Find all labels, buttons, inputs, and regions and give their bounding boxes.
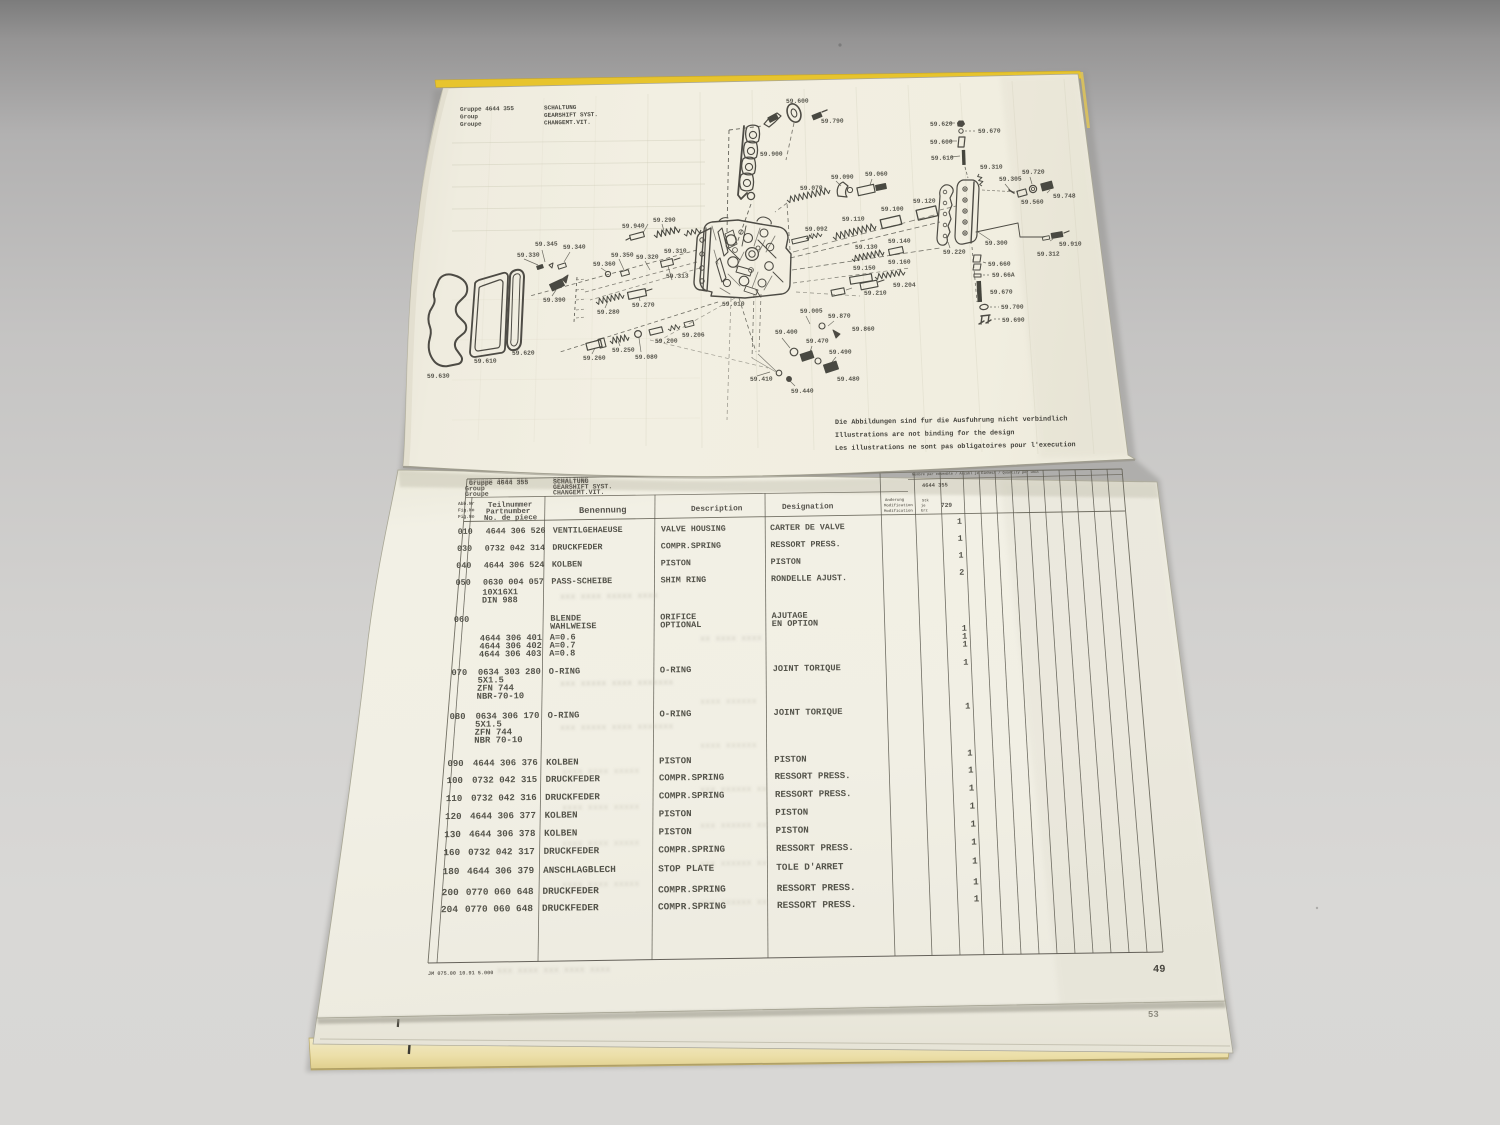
svg-text:NBR 70-10: NBR 70-10 [474, 735, 522, 746]
svg-text:1: 1 [974, 893, 980, 904]
svg-text:Modification: Modification [884, 509, 913, 514]
svg-text:4644 306 376: 4644 306 376 [473, 757, 538, 769]
svg-text:1: 1 [967, 749, 973, 759]
svg-text:O-RING: O-RING [549, 666, 581, 676]
svg-text:1: 1 [957, 518, 962, 527]
svg-text:59.690: 59.690 [1002, 317, 1025, 324]
svg-text:4644 306 526: 4644 306 526 [486, 527, 546, 537]
svg-text:59.290: 59.290 [653, 217, 676, 224]
svg-text:050: 050 [456, 578, 471, 588]
svg-text:RESSORT PRESS.: RESSORT PRESS. [777, 882, 856, 894]
svg-text:COMPR.SPRING: COMPR.SPRING [659, 772, 724, 784]
svg-text:59.070: 59.070 [800, 185, 823, 192]
svg-text:KOLBEN: KOLBEN [544, 827, 577, 838]
svg-text:59.330: 59.330 [517, 252, 540, 259]
svg-text:59.900: 59.900 [760, 151, 783, 158]
svg-text:Erz: Erz [921, 508, 928, 513]
svg-text:040: 040 [456, 561, 471, 571]
svg-text:je: je [921, 503, 926, 508]
svg-text:59.860: 59.860 [852, 326, 875, 333]
svg-text:59.670: 59.670 [990, 289, 1013, 296]
svg-text:JOINT TORIQUE: JOINT TORIQUE [773, 707, 842, 718]
svg-text:59.630: 59.630 [427, 373, 450, 380]
svg-text:O-RING: O-RING [548, 710, 580, 720]
svg-text:0732 042 315: 0732 042 315 [472, 774, 537, 786]
svg-text:PISTON: PISTON [659, 808, 692, 819]
svg-text:xxx xxxxx xxxx xxxxxxx: xxx xxxxx xxxx xxxxxxx [560, 678, 674, 689]
svg-text:59.310: 59.310 [980, 164, 1003, 171]
svg-text:59.345: 59.345 [535, 241, 558, 248]
svg-text:030: 030 [457, 544, 472, 554]
svg-text:Benennung: Benennung [579, 505, 627, 516]
svg-text:204: 204 [441, 904, 458, 915]
svg-text:O-RING: O-RING [659, 709, 691, 719]
svg-text:59.600: 59.600 [786, 98, 809, 105]
svg-text:59.910: 59.910 [1059, 241, 1082, 248]
svg-text:xxx xxxxxx xx: xxx xxxxxx xx [700, 820, 767, 831]
svg-text:59.270: 59.270 [632, 302, 655, 309]
svg-text:59.140: 59.140 [888, 238, 911, 245]
svg-text:RONDELLE AJUST.: RONDELLE AJUST. [771, 573, 847, 584]
svg-text:PISTON: PISTON [658, 826, 691, 837]
svg-text:59.350: 59.350 [611, 252, 634, 259]
svg-text:No. de piece: No. de piece [484, 514, 538, 523]
svg-text:49: 49 [1153, 964, 1166, 976]
svg-text:RESSORT PRESS.: RESSORT PRESS. [775, 788, 852, 800]
svg-text:59.210: 59.210 [864, 290, 887, 297]
svg-text:1: 1 [962, 640, 967, 650]
svg-text:RESSORT PRESS.: RESSORT PRESS. [774, 770, 850, 782]
svg-text:59.720: 59.720 [1022, 169, 1045, 176]
svg-text:59.66A: 59.66A [992, 272, 1015, 279]
svg-text:080: 080 [450, 712, 466, 722]
svg-text:0770 060 648: 0770 060 648 [465, 903, 534, 915]
svg-text:Stk: Stk [922, 498, 930, 503]
svg-text:59.080: 59.080 [635, 354, 658, 361]
svg-text:180: 180 [443, 866, 460, 877]
svg-text:Gruppe 4644 355: Gruppe 4644 355 [469, 477, 528, 485]
svg-text:PASS-SCHEIBE: PASS-SCHEIBE [551, 576, 612, 587]
svg-text:1: 1 [970, 819, 976, 830]
svg-text:1: 1 [970, 801, 976, 812]
svg-text:1: 1 [973, 876, 979, 887]
svg-text:59.410: 59.410 [750, 376, 773, 383]
svg-text:59.120: 59.120 [913, 198, 936, 205]
svg-text:xxxx xxxxxx: xxxx xxxxxx [700, 740, 757, 751]
svg-text:1: 1 [972, 856, 978, 867]
svg-text:59.090: 59.090 [831, 174, 854, 181]
svg-text:xxxx xxxx xxxxx: xxxx xxxx xxxxx [562, 766, 639, 777]
svg-text:PISTON: PISTON [775, 825, 808, 836]
svg-text:59.440: 59.440 [791, 388, 814, 395]
svg-text:59.092: 59.092 [805, 226, 828, 233]
svg-text:090: 090 [447, 758, 463, 769]
svg-text:1: 1 [963, 658, 968, 668]
svg-text:xxxx xxxx xxxxx: xxxx xxxx xxxxx [562, 879, 639, 890]
svg-text:59.100: 59.100 [881, 206, 904, 213]
svg-text:59.620: 59.620 [930, 121, 953, 128]
svg-text:Groupe: Groupe [465, 491, 489, 498]
svg-text:Description: Description [691, 505, 743, 514]
svg-text:SHIM RING: SHIM RING [661, 575, 707, 586]
svg-text:4644 306 377: 4644 306 377 [470, 810, 536, 822]
svg-text:060: 060 [454, 615, 470, 625]
svg-text:59.670: 59.670 [978, 128, 1001, 135]
svg-text:59.610: 59.610 [474, 358, 497, 365]
svg-text:59.600: 59.600 [930, 139, 953, 146]
svg-text:4644 306 403: 4644 306 403 [479, 649, 542, 660]
svg-text:OPTIONAL: OPTIONAL [660, 620, 701, 631]
svg-text:59.280: 59.280 [597, 309, 620, 316]
svg-text:PISTON: PISTON [771, 557, 801, 567]
svg-text:729: 729 [941, 502, 953, 509]
svg-text:RESSORT PRESS.: RESSORT PRESS. [770, 539, 840, 550]
svg-text:4644 306 379: 4644 306 379 [467, 865, 535, 877]
svg-text:xxx xxxx xxxxx xxxx: xxx xxxx xxxxx xxxx [560, 591, 658, 602]
svg-text:SCHALTUNG: SCHALTUNG [553, 476, 589, 483]
svg-text:160: 160 [443, 847, 460, 858]
svg-text:59.360: 59.360 [593, 261, 616, 268]
svg-text:070: 070 [451, 668, 467, 678]
svg-text:PISTON: PISTON [775, 807, 808, 818]
svg-text:SCHALTUNG: SCHALTUNG [544, 104, 577, 112]
svg-text:59.312: 59.312 [1037, 251, 1060, 258]
svg-text:NBR-70-10: NBR-70-10 [477, 691, 525, 702]
svg-text:TOLE D'ARRET: TOLE D'ARRET [776, 861, 844, 873]
svg-text:1: 1 [969, 783, 975, 794]
svg-text:59.940: 59.940 [622, 223, 645, 230]
svg-text:59.748: 59.748 [1053, 193, 1076, 200]
svg-text:120: 120 [445, 811, 462, 822]
svg-text:1: 1 [971, 837, 977, 848]
svg-text:xxx xxxxxx xx: xxx xxxxxx xx [700, 897, 767, 908]
svg-text:CHANGEMT.VIT.: CHANGEMT.VIT. [553, 489, 605, 497]
svg-text:WAHLWEISE: WAHLWEISE [550, 621, 597, 632]
svg-text:JM 075.00 10.91 5.000: JM 075.00 10.91 5.000 [428, 970, 493, 977]
svg-text:4644 306 378: 4644 306 378 [469, 828, 536, 840]
svg-text:Designation: Designation [782, 503, 834, 512]
svg-text:DRUCKFEDER: DRUCKFEDER [552, 542, 603, 553]
svg-text:0630 004 057: 0630 004 057 [483, 577, 544, 588]
svg-text:1: 1 [965, 702, 970, 712]
svg-text:59.660: 59.660 [988, 261, 1011, 268]
svg-text:Group: Group [460, 113, 479, 120]
svg-text:59.160: 59.160 [888, 259, 911, 266]
svg-text:59.560: 59.560 [1021, 199, 1044, 206]
svg-text:59.260: 59.260 [583, 355, 606, 362]
svg-text:xxx xxxx xxx xxxx xxxx: xxx xxxx xxx xxxx xxxx [497, 965, 611, 976]
svg-text:010: 010 [458, 528, 473, 537]
svg-text:59.206: 59.206 [682, 332, 705, 339]
svg-text:O-RING: O-RING [660, 665, 692, 675]
svg-text:59.204: 59.204 [893, 282, 916, 289]
svg-text:EN OPTION: EN OPTION [772, 618, 819, 629]
svg-text:4644 306 524: 4644 306 524 [484, 560, 545, 571]
svg-text:PISTON: PISTON [659, 755, 692, 766]
svg-text:RESSORT PRESS.: RESSORT PRESS. [777, 899, 857, 911]
svg-text:0732 042 314: 0732 042 314 [485, 543, 545, 554]
svg-text:PISTON: PISTON [661, 558, 691, 568]
svg-text:KOLBEN: KOLBEN [552, 559, 582, 569]
svg-text:59.400: 59.400 [775, 329, 798, 336]
svg-text:xxxx xxxx xxxxx: xxxx xxxx xxxxx [562, 838, 639, 849]
svg-text:59.470: 59.470 [806, 338, 829, 345]
svg-text:2: 2 [959, 568, 964, 578]
svg-text:xxxx xxxxxx: xxxx xxxxxx [700, 696, 757, 707]
svg-text:59.610: 59.610 [931, 155, 954, 162]
svg-text:Fig.No: Fig.No [458, 507, 475, 513]
svg-text:1: 1 [958, 534, 963, 544]
svg-text:Anderung: Anderung [885, 498, 905, 503]
svg-text:RESSORT PRESS.: RESSORT PRESS. [776, 842, 854, 854]
svg-text:Abb.Nr: Abb.Nr [458, 501, 475, 507]
svg-text:100: 100 [447, 775, 463, 786]
svg-text:JOINT TORIQUE: JOINT TORIQUE [773, 663, 841, 674]
svg-text:200: 200 [442, 887, 459, 898]
svg-text:xx xxxx xxxx: xx xxxx xxxx [700, 633, 762, 644]
svg-text:59.313: 59.313 [666, 273, 689, 280]
svg-text:59.320: 59.320 [636, 254, 659, 261]
svg-text:59.480: 59.480 [837, 376, 860, 383]
svg-text:59.300: 59.300 [985, 240, 1008, 247]
svg-text:59.130: 59.130 [855, 244, 878, 251]
svg-text:59.700: 59.700 [1001, 304, 1024, 311]
svg-text:Groupe: Groupe [460, 121, 482, 128]
svg-text:1: 1 [958, 551, 963, 561]
svg-text:xxx xxxxxx xx: xxx xxxxxx xx [700, 858, 767, 869]
svg-text:53: 53 [1148, 1010, 1159, 1020]
svg-text:59.060: 59.060 [865, 171, 888, 178]
svg-text:Modification: Modification [884, 503, 913, 508]
svg-text:59.220: 59.220 [943, 249, 966, 256]
svg-text:COMPR.SPRING: COMPR.SPRING [661, 541, 721, 552]
svg-text:59.620: 59.620 [512, 350, 535, 357]
svg-text:ANSCHLAGBLECH: ANSCHLAGBLECH [543, 864, 616, 876]
svg-text:0732 042 317: 0732 042 317 [468, 846, 535, 858]
svg-text:4644 355: 4644 355 [922, 482, 948, 489]
svg-text:59.250: 59.250 [612, 347, 635, 354]
svg-text:Fig.No: Fig.No [458, 514, 475, 520]
svg-text:DIN 988: DIN 988 [482, 595, 518, 605]
svg-text:DRUCKFEDER: DRUCKFEDER [542, 902, 599, 914]
svg-text:59.490: 59.490 [829, 349, 852, 356]
svg-text:59.390: 59.390 [543, 297, 566, 304]
svg-text:DRUCKFEDER: DRUCKFEDER [545, 791, 600, 803]
svg-text:Gruppe 4644 355: Gruppe 4644 355 [460, 105, 515, 113]
svg-text:59.005: 59.005 [800, 308, 823, 315]
svg-text:0770 060 648: 0770 060 648 [466, 886, 534, 898]
svg-text:xxx xxxxxx xx: xxx xxxxxx xx [700, 784, 767, 795]
svg-text:0732 042 316: 0732 042 316 [471, 792, 537, 804]
svg-text:PISTON: PISTON [774, 754, 807, 765]
svg-text:110: 110 [446, 793, 463, 804]
svg-text:COMPR.SPRING: COMPR.SPRING [658, 884, 726, 896]
svg-text:130: 130 [444, 829, 461, 840]
svg-text:VALVE HOUSING: VALVE HOUSING [661, 525, 726, 535]
svg-text:59.340: 59.340 [563, 244, 586, 251]
svg-text:xxx xxxxx xxxx xxxxxxx: xxx xxxxx xxxx xxxxxxx [560, 722, 674, 733]
svg-text:VENTILGEHAEUSE: VENTILGEHAEUSE [553, 526, 623, 536]
svg-text:1: 1 [968, 765, 974, 776]
svg-text:CARTER DE VALVE: CARTER DE VALVE [770, 523, 845, 533]
svg-text:A=0.8: A=0.8 [549, 648, 575, 658]
svg-text:59.870: 59.870 [828, 313, 851, 320]
svg-text:CHANGEMT.VIT.: CHANGEMT.VIT. [544, 119, 591, 127]
svg-text:59.305: 59.305 [999, 176, 1022, 183]
svg-text:59.150: 59.150 [853, 265, 876, 272]
svg-text:COMPR.SPRING: COMPR.SPRING [658, 844, 725, 856]
svg-text:59.110: 59.110 [842, 216, 865, 223]
svg-text:59.790: 59.790 [821, 118, 844, 125]
svg-text:xxxx xxxx xxxxx: xxxx xxxx xxxxx [562, 802, 639, 813]
